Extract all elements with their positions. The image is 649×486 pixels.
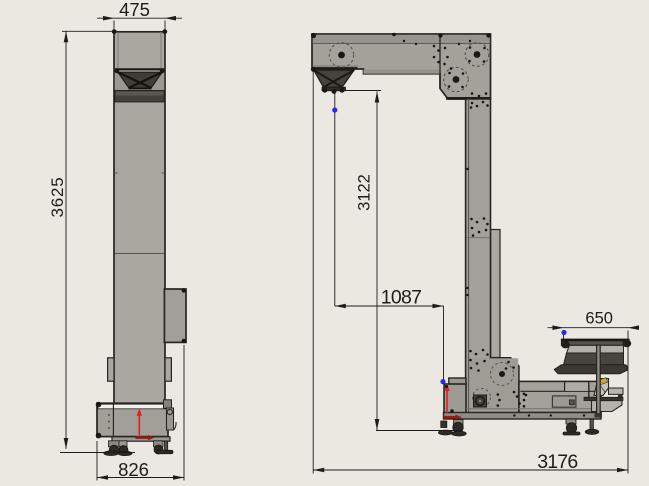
svg-text:3122: 3122 [355, 174, 373, 211]
svg-text:3176: 3176 [537, 451, 577, 473]
svg-text:475: 475 [119, 0, 150, 20]
svg-text:3625: 3625 [48, 176, 67, 217]
svg-text:1087: 1087 [381, 287, 422, 309]
svg-text:826: 826 [118, 459, 149, 480]
svg-text:650: 650 [585, 310, 613, 328]
